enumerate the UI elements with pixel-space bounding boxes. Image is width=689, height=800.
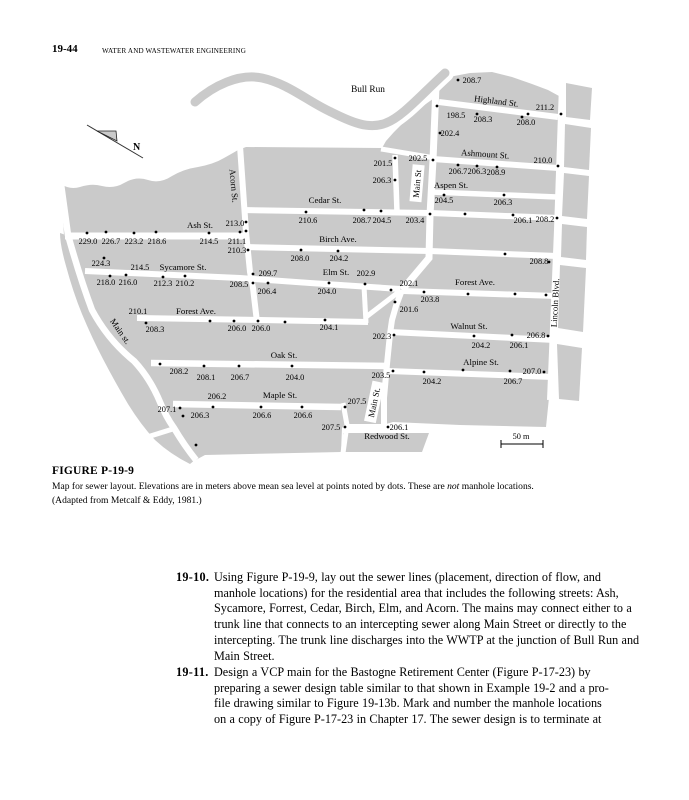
svg-text:201.6: 201.6 <box>400 305 419 314</box>
svg-text:229.0: 229.0 <box>79 237 98 246</box>
svg-text:206.2: 206.2 <box>208 392 227 401</box>
svg-text:210.6: 210.6 <box>299 216 318 225</box>
svg-text:207.0: 207.0 <box>523 367 542 376</box>
svg-text:207.5: 207.5 <box>348 397 367 406</box>
svg-text:Redwood St.: Redwood St. <box>364 431 409 441</box>
svg-text:208.9: 208.9 <box>487 168 506 177</box>
svg-text:206.3: 206.3 <box>468 167 487 176</box>
svg-text:204.0: 204.0 <box>318 287 337 296</box>
svg-text:Forest Ave.: Forest Ave. <box>176 306 216 316</box>
svg-text:202.3: 202.3 <box>373 332 392 341</box>
svg-text:Aspen St.: Aspen St. <box>434 180 468 190</box>
svg-text:207.5: 207.5 <box>322 423 341 432</box>
svg-text:202.9: 202.9 <box>357 269 376 278</box>
svg-text:204.2: 204.2 <box>423 377 442 386</box>
svg-text:202.1: 202.1 <box>400 279 419 288</box>
svg-text:206.0: 206.0 <box>252 324 271 333</box>
svg-text:Maple St.: Maple St. <box>263 390 297 400</box>
svg-text:208.7: 208.7 <box>463 76 482 85</box>
svg-text:206.1: 206.1 <box>514 216 533 225</box>
svg-text:198.5: 198.5 <box>447 111 466 120</box>
svg-text:206.6: 206.6 <box>253 411 272 420</box>
svg-text:208.5: 208.5 <box>230 280 249 289</box>
svg-text:206.0: 206.0 <box>228 324 247 333</box>
svg-text:50 m: 50 m <box>513 432 530 441</box>
svg-text:208.0: 208.0 <box>517 118 536 127</box>
svg-text:214.5: 214.5 <box>200 237 219 246</box>
svg-text:224.3: 224.3 <box>92 259 111 268</box>
svg-text:208.7: 208.7 <box>353 216 372 225</box>
svg-text:206.6: 206.6 <box>294 411 313 420</box>
svg-text:214.5: 214.5 <box>131 263 150 272</box>
svg-text:207.1: 207.1 <box>158 405 177 414</box>
svg-text:202.4: 202.4 <box>441 129 461 138</box>
svg-text:208.8: 208.8 <box>530 257 549 266</box>
svg-text:223.2: 223.2 <box>125 237 144 246</box>
svg-text:206.1: 206.1 <box>510 341 529 350</box>
svg-text:Birch Ave.: Birch Ave. <box>319 234 356 244</box>
svg-text:Bull Run: Bull Run <box>351 85 385 95</box>
svg-text:211.2: 211.2 <box>536 103 554 112</box>
svg-text:Ash St.: Ash St. <box>187 220 213 230</box>
svg-text:204.5: 204.5 <box>373 216 392 225</box>
svg-text:202.5: 202.5 <box>409 154 428 163</box>
svg-text:208.3: 208.3 <box>146 325 165 334</box>
svg-text:218.0: 218.0 <box>97 278 116 287</box>
svg-text:206.3: 206.3 <box>373 176 392 185</box>
svg-text:210.3: 210.3 <box>228 246 247 255</box>
svg-text:204.1: 204.1 <box>320 323 339 332</box>
svg-text:208.2: 208.2 <box>170 367 189 376</box>
svg-text:Alpine St.: Alpine St. <box>463 357 499 367</box>
svg-text:208.3: 208.3 <box>474 115 493 124</box>
svg-text:204.0: 204.0 <box>286 373 305 382</box>
svg-text:206.7: 206.7 <box>449 167 468 176</box>
svg-text:212.3: 212.3 <box>154 279 173 288</box>
svg-text:Oak St.: Oak St. <box>271 350 297 360</box>
svg-text:Forest Ave.: Forest Ave. <box>455 277 495 287</box>
svg-text:209.7: 209.7 <box>259 269 278 278</box>
svg-text:204.5: 204.5 <box>435 196 454 205</box>
svg-text:201.5: 201.5 <box>374 159 393 168</box>
svg-text:Elm St.: Elm St. <box>323 267 349 277</box>
svg-text:213.0: 213.0 <box>226 219 245 228</box>
svg-text:203.4: 203.4 <box>406 216 426 225</box>
svg-text:N: N <box>133 142 141 153</box>
svg-text:208.2: 208.2 <box>536 215 555 224</box>
svg-text:Sycamore St.: Sycamore St. <box>160 262 207 272</box>
svg-text:208.0: 208.0 <box>291 254 310 263</box>
svg-text:211.1: 211.1 <box>228 237 246 246</box>
svg-text:210.2: 210.2 <box>176 279 195 288</box>
svg-text:Walnut St.: Walnut St. <box>451 321 488 331</box>
svg-text:203.8: 203.8 <box>421 295 440 304</box>
svg-text:210.0: 210.0 <box>534 156 553 165</box>
svg-text:208.1: 208.1 <box>197 373 216 382</box>
svg-text:206.7: 206.7 <box>231 373 250 382</box>
svg-text:210.1: 210.1 <box>129 307 148 316</box>
svg-text:204.2: 204.2 <box>330 254 349 263</box>
svg-text:206.4: 206.4 <box>258 287 278 296</box>
svg-text:218.6: 218.6 <box>148 237 167 246</box>
svg-text:216.0: 216.0 <box>119 278 138 287</box>
svg-text:206.3: 206.3 <box>494 198 513 207</box>
svg-text:206.3: 206.3 <box>191 411 210 420</box>
svg-text:Cedar St.: Cedar St. <box>309 195 342 205</box>
svg-text:206.1: 206.1 <box>390 423 409 432</box>
svg-text:206.8: 206.8 <box>527 331 546 340</box>
svg-text:204.2: 204.2 <box>472 341 491 350</box>
svg-text:206.7: 206.7 <box>504 377 523 386</box>
svg-text:226.7: 226.7 <box>102 237 121 246</box>
svg-text:203.5: 203.5 <box>372 371 391 380</box>
